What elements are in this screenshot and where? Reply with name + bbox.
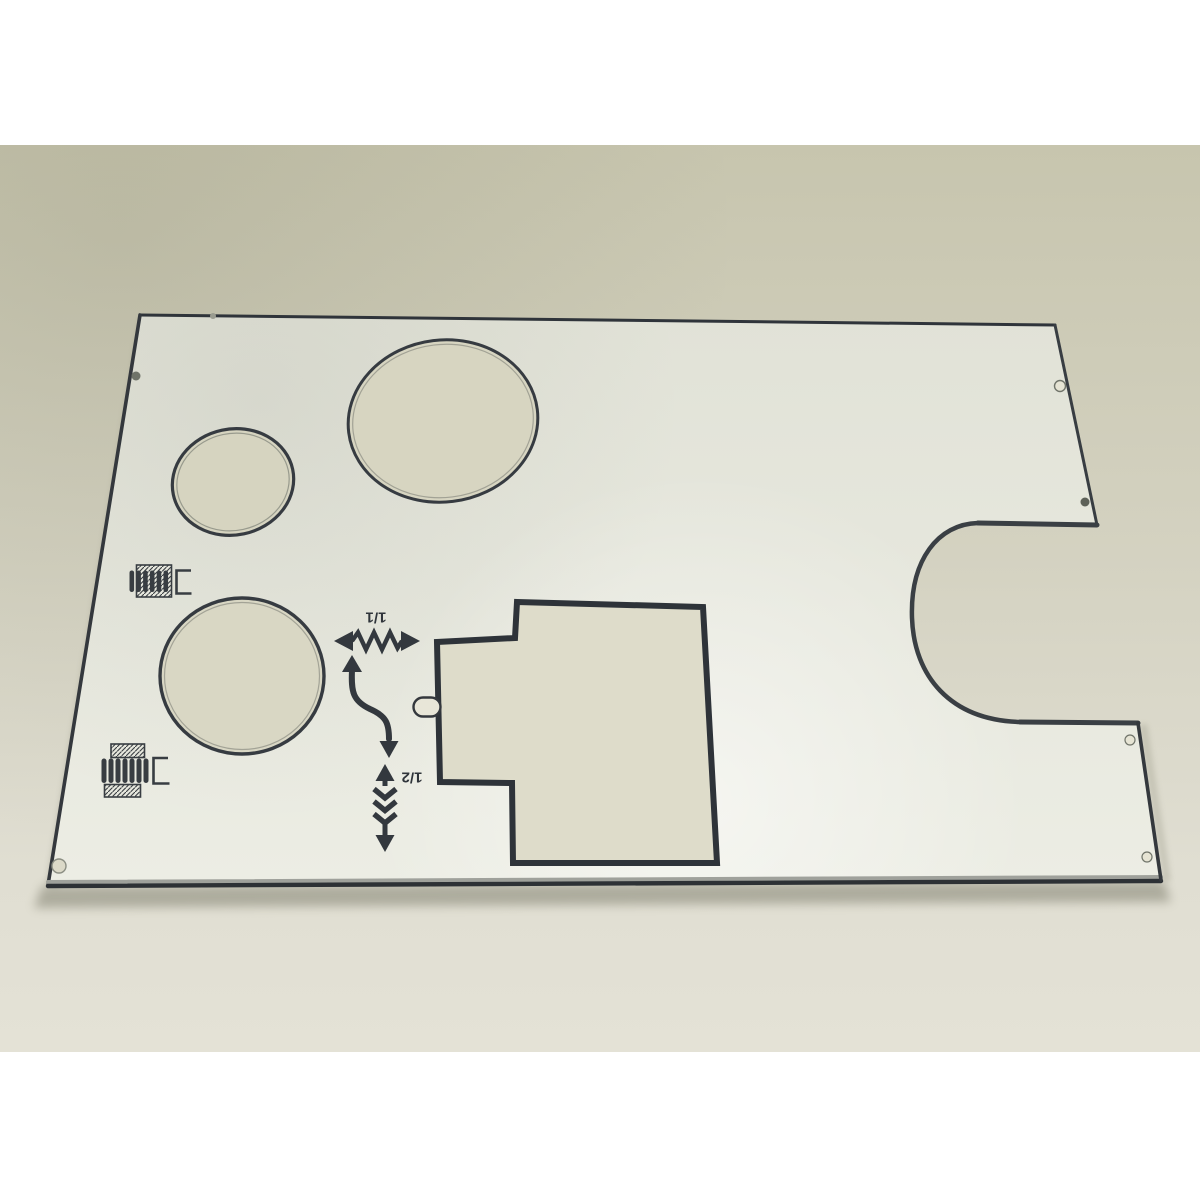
notch-top-edge bbox=[978, 523, 1097, 525]
screw-hole bbox=[1055, 381, 1066, 392]
screw-hole bbox=[1081, 498, 1090, 507]
large-round-hole bbox=[160, 598, 324, 754]
small-slot-hole bbox=[414, 698, 441, 717]
screw-hole bbox=[52, 859, 66, 873]
label-ratio-full: 1/1 bbox=[366, 609, 387, 626]
screw-hole bbox=[132, 372, 141, 381]
photo-canvas: 1/1 1/2 bbox=[0, 0, 1200, 1200]
label-ratio-half: 1/2 bbox=[402, 769, 423, 786]
screw-hole bbox=[210, 313, 216, 319]
notch-bottom-edge bbox=[1020, 722, 1138, 723]
screw-hole bbox=[1142, 852, 1152, 862]
photo: 1/1 1/2 bbox=[0, 0, 1200, 1200]
screw-hole bbox=[1125, 735, 1135, 745]
